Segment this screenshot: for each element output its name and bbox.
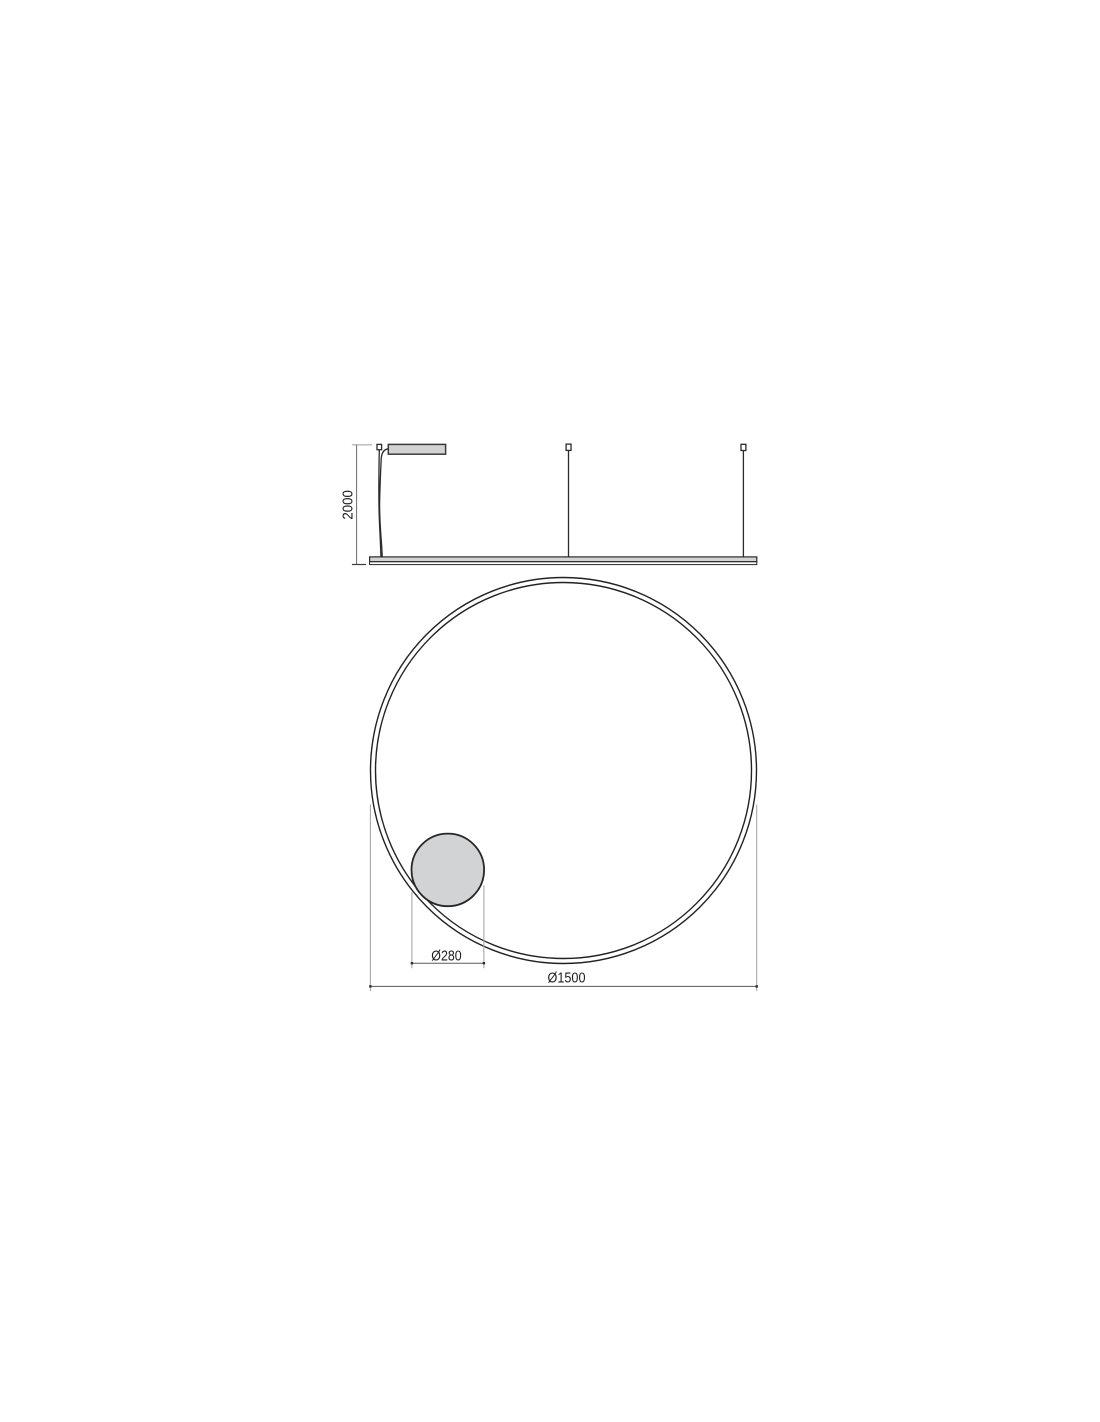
svg-text:Ø1500: Ø1500 xyxy=(548,970,586,986)
svg-text:2000: 2000 xyxy=(340,490,356,520)
svg-text:Ø280: Ø280 xyxy=(431,948,461,964)
